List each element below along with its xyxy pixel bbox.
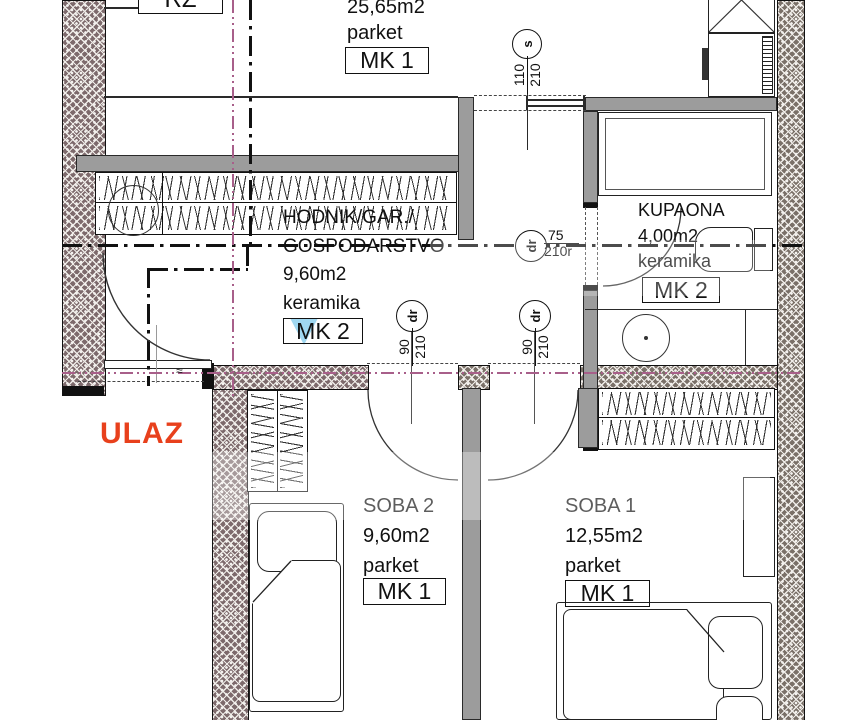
wall-exterior-right [777, 0, 805, 720]
corridor-opening-dash-top [474, 95, 586, 96]
wall-rooms-divider [462, 388, 481, 720]
hodnik-area: 9,60m2 [283, 261, 445, 290]
kupaona-text: KUPAONA 4,00m2 keramika [638, 198, 725, 275]
hodnik-mk-box: MK 2 [283, 318, 363, 344]
bath-shower-line-h [585, 309, 777, 310]
entrance-lintel-dash [78, 381, 204, 382]
soba2-door-dimension: 90 210 [393, 328, 431, 366]
soba1-blanket [563, 609, 724, 720]
wall-bath-top [585, 97, 777, 111]
hodnik-name-2: GOSPODARSTVO [283, 233, 445, 262]
kupaona-name: KUPAONA [638, 198, 725, 224]
wall-top-room-bottom [76, 155, 474, 172]
closet-divider [162, 173, 163, 234]
shaft-box [708, 0, 775, 33]
soba1-area: 12,55m2 [565, 521, 643, 551]
kupaona-floor: keramika [638, 249, 725, 275]
hodnik-text: HODNIK/GAR./ GOSPODARSTVO 9,60m2 keramik… [283, 204, 445, 318]
soba1-wardrobe-hatch-bottom [602, 420, 771, 445]
soba1-door-return-wall [578, 388, 598, 448]
soba1-door-height: 210 [536, 335, 551, 358]
bath-door-height: 210r [544, 244, 572, 259]
wall-left-end-cap [62, 386, 104, 395]
soba1-wardrobe [598, 388, 775, 450]
soba1-wardrobe-rail [599, 417, 774, 418]
section-jog-v2 [147, 268, 150, 386]
hodnik-name-1: HODNIK/GAR./ [283, 204, 445, 233]
entrance-label: ULAZ [100, 417, 184, 451]
soba1-pillow-2 [716, 696, 763, 720]
rz-label-box: RZ [138, 0, 223, 14]
soba2-area: 9,60m2 [363, 521, 434, 551]
window-s-marker: s [512, 29, 542, 59]
window-s-tag: s [520, 40, 535, 47]
window-s-dimension: 110 210 [507, 56, 547, 94]
window-sill-line-1 [526, 99, 584, 101]
soba1-nightstand [743, 477, 775, 577]
bathtub-inner [605, 118, 765, 190]
bath-door-marker: dr [515, 230, 547, 262]
wall-entry-side [212, 365, 249, 720]
soba2-name: SOBA 2 [363, 491, 434, 521]
entrance-threshold [104, 360, 212, 369]
top-room-text: 25,65m2 parket [347, 0, 425, 46]
soba1-door-arc [488, 390, 578, 480]
rz-leader-line [104, 7, 138, 9]
cabinet-handle [702, 48, 708, 80]
floor-drain-circle [622, 314, 670, 362]
soba1-name: SOBA 1 [565, 491, 643, 521]
soba1-door-width: 90 [520, 339, 535, 355]
soba2-door-height: 210 [413, 335, 428, 358]
entrance-mark-leader [156, 325, 157, 383]
washer-circle [108, 185, 159, 236]
hodnik-mk: MK 2 [296, 318, 350, 345]
section-line-vertical [249, 0, 252, 246]
soba2-door-arc [368, 390, 458, 480]
wall-bottom-right-segment [580, 365, 805, 390]
soba1-text: SOBA 1 12,55m2 parket [565, 491, 643, 581]
window-jamb-right [583, 96, 585, 110]
kupaona-area: 4,00m2 [638, 224, 725, 250]
wall-bath-left-upper [583, 111, 598, 203]
bath-door-cap-bottom [583, 285, 598, 290]
soba1-door-dimension: 90 210 [516, 328, 554, 366]
top-room-mk-box: MK 1 [345, 47, 429, 74]
top-room-mk: MK 1 [360, 47, 414, 74]
top-room-area: 25,65m2 [347, 0, 425, 20]
toilet-tank [754, 228, 773, 271]
entrance-mark: ≈ [176, 364, 183, 378]
bath-door-dimension: 75 210r [544, 228, 579, 259]
soba2-door-tag: dr [405, 310, 420, 323]
floor-plan: RZ 25,65m2 parket MK 1 HODNIK/GAR./ GOSP… [0, 0, 860, 720]
rz-label: RZ [165, 0, 197, 14]
vent-grille [762, 36, 773, 94]
window-s-height: 210 [528, 63, 543, 86]
axis-line-horizontal [62, 372, 803, 374]
axis-line-vertical [232, 0, 234, 396]
floor-drain-dot [644, 336, 648, 340]
kupaona-mk-box: MK 2 [642, 277, 720, 303]
soba1-door-tag: dr [528, 310, 543, 323]
wall-corridor-pier [458, 97, 474, 240]
soba2-wardrobe-rail [277, 391, 278, 491]
soba1-wardrobe-hatch-top [602, 392, 771, 415]
soba1-floor: parket [565, 551, 643, 581]
top-room-divider-line [104, 96, 458, 98]
soba2-wardrobe-hatch-right [280, 394, 303, 488]
wall-bottom-pier [458, 365, 490, 390]
soba2-mk-box: MK 1 [363, 578, 446, 605]
corridor-opening-dash-bottom [474, 110, 586, 111]
soba2-door-width: 90 [397, 339, 412, 355]
top-room-floor: parket [347, 20, 425, 46]
soba1-pillow-1 [708, 616, 763, 689]
soba2-wardrobe [247, 390, 308, 492]
bath-door-tag: dr [524, 240, 539, 253]
window-s-width: 110 [512, 64, 527, 86]
soba1-mk: MK 1 [581, 580, 635, 607]
soba2-floor: parket [363, 551, 434, 581]
soba1-mk-box: MK 1 [565, 580, 650, 607]
kupaona-mk: MK 2 [654, 277, 708, 304]
soba2-wardrobe-hatch-left [251, 394, 274, 488]
window-sill-line-2 [526, 105, 584, 107]
bath-door-width: 75 [544, 228, 564, 243]
soba2-mk: MK 1 [378, 578, 432, 605]
bath-shower-line-v [745, 309, 746, 365]
wall-bottom-left-segment [213, 365, 369, 390]
soba2-text: SOBA 2 9,60m2 parket [363, 491, 434, 581]
